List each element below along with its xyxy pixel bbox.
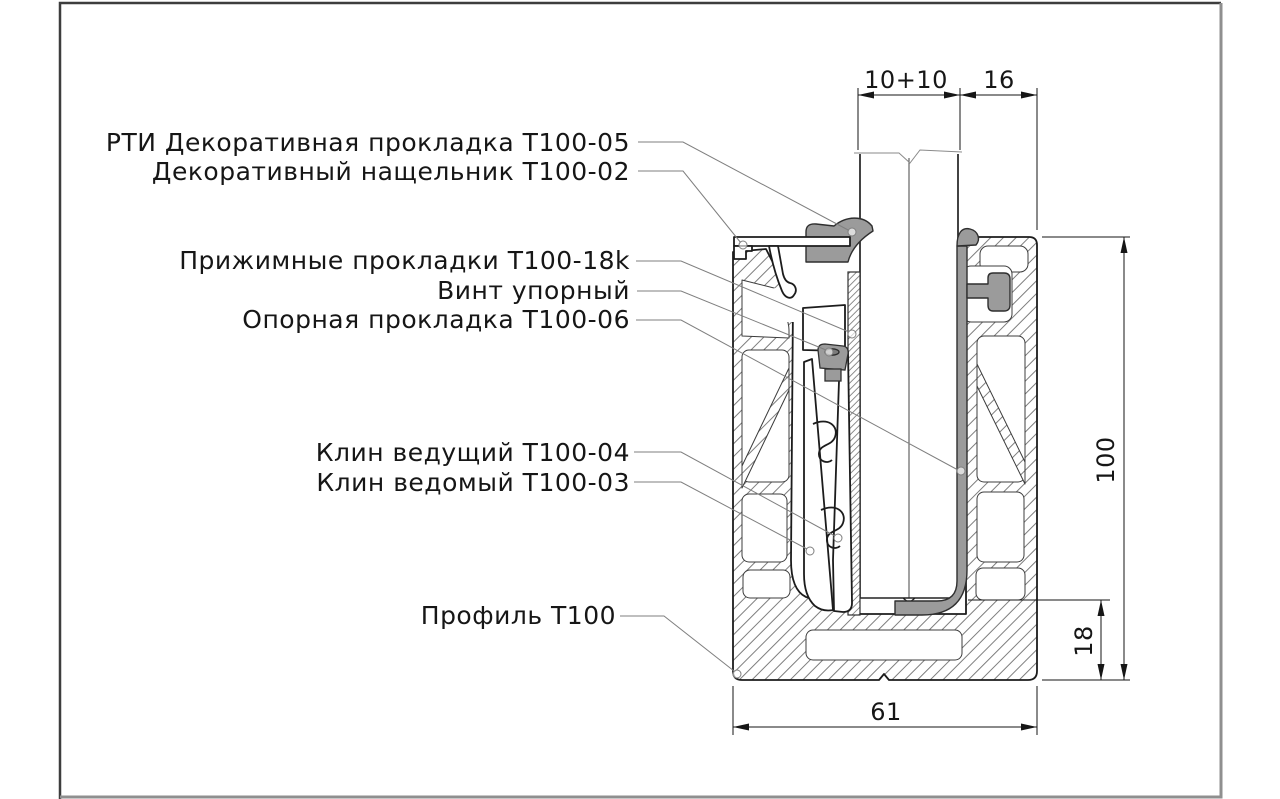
chamber-right-corner	[976, 568, 1025, 600]
leader-support-pad	[636, 320, 958, 470]
label-driven-wedge: Клин ведомый Т100-03	[316, 468, 630, 497]
chamber-right-low	[977, 492, 1024, 562]
label-pressure-pads: Прижимные прокладки Т100-18k	[179, 246, 630, 275]
glass-break-line	[854, 150, 962, 163]
support-pad-body	[895, 246, 967, 615]
dim-glass-thickness: 10+10	[864, 66, 948, 94]
label-stop-screw: Винт упорный	[437, 276, 630, 305]
screw-head	[818, 344, 848, 370]
glass-panes	[854, 150, 962, 603]
leader-rti	[638, 142, 850, 231]
chamber-left-corner	[743, 570, 790, 598]
leader-cover-strip	[638, 171, 741, 243]
label-profile: Профиль Т100	[421, 601, 616, 630]
driven-wedge-t100-03	[804, 359, 833, 611]
dim-profile-height: 100	[1092, 436, 1120, 483]
part-labels: РТИ Декоративная прокладка Т100-05 Декор…	[106, 128, 630, 630]
frame-bottom-right	[60, 3, 1221, 797]
screw-shaft	[825, 369, 841, 381]
chamber-left-low	[742, 494, 787, 562]
support-pad-top-lip	[957, 229, 978, 246]
dim-profile-width: 61	[870, 698, 902, 726]
label-support-pad: Опорная прокладка Т100-06	[242, 305, 630, 334]
cover-strip-plate	[734, 237, 850, 246]
leader-profile	[620, 616, 734, 671]
label-cover-strip: Декоративный нащельник Т100-02	[152, 157, 630, 186]
label-driving-wedge: Клин ведущий Т100-04	[316, 438, 630, 467]
chamber-bottom-hollow	[806, 630, 962, 660]
label-rti-gasket: РТИ Декоративная прокладка Т100-05	[106, 128, 630, 157]
dim-base-height: 18	[1070, 625, 1098, 657]
dim-top-gap: 16	[983, 66, 1015, 94]
technical-drawing-canvas: 10+10 16 100 18 61 РТИ Декоративная прок…	[0, 0, 1280, 799]
